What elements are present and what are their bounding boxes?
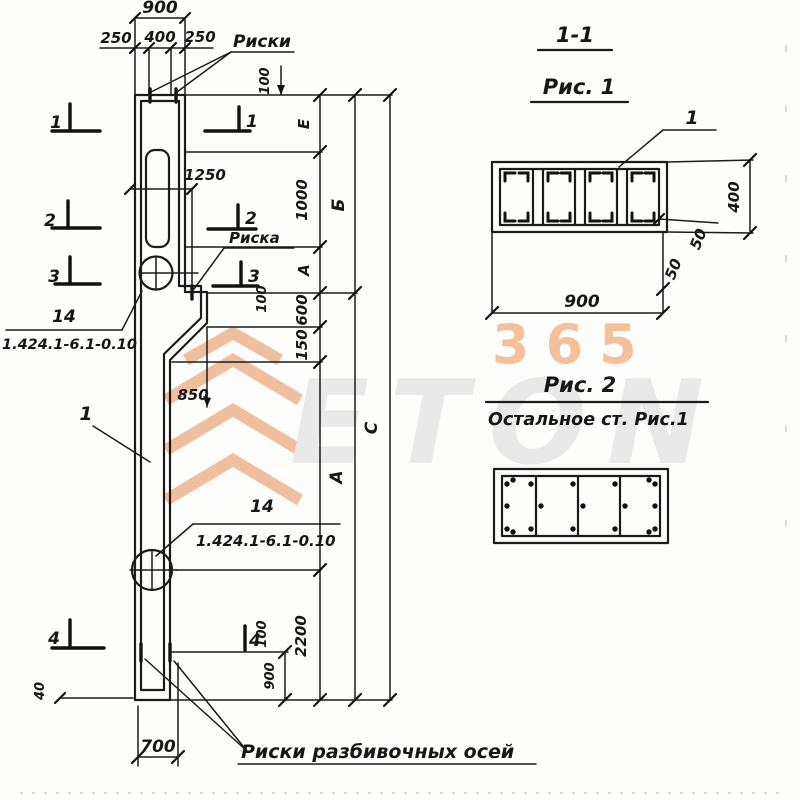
marker-1-right: 1 [205,107,258,132]
fig1-callout-1-text: 1 [685,107,698,129]
dim-letter-a: А [295,264,313,277]
dim-bottom-700-text: 700 [140,737,176,757]
loop-callout-bottom: 14 1.424.1-6.1-0.10 [156,497,340,556]
fig1-dim-50b: 50 [657,233,686,295]
dim-letter-b: Б [329,198,349,211]
marker-2-left: 2 [44,201,100,231]
section-title-block: 1-1 Рис. 1 [531,23,628,102]
fig2-title: Рис. 2 [544,373,616,397]
dim-letter-a2: А [327,470,347,485]
marker-3-left: 3 [48,257,100,287]
fig1-dim-900-text: 900 [564,292,600,312]
dim-bottom-700: 700 [132,663,184,766]
fig1-callout-1: 1 [619,107,716,167]
dim-400: 400 [143,28,175,46]
dim-250-right: 250 [184,28,215,46]
dim-total-900: 900 [142,0,178,18]
riska-mid-callout: Риска [194,229,294,289]
part-callout-1: 1 [79,403,150,462]
riski-top-label: Риски [233,32,291,52]
dim-letter-c: С [362,421,382,434]
riski-axes-callout: Риски разбивочных осей [145,659,536,764]
loop-top-series: 1.424.1-6.1-0.10 [2,337,137,353]
marker-3-right: 3 100 [213,262,270,313]
dim-m4-100: 100 [255,620,270,647]
dim-850: 850 [177,327,211,407]
marker-4-left: 4 [47,620,104,649]
marker-4-right: 4 100 [245,620,270,651]
marker-1-right-num: 1 [246,112,258,132]
watermark-digits-text: 365 [492,313,653,376]
marker-4-left-num: 4 [47,629,60,649]
loop-bottom-pos: 14 [250,497,274,517]
dim-250-left: 250 [100,29,131,47]
marker-2-right-num: 2 [245,209,257,229]
fig1-title: Рис. 1 [543,75,615,99]
fig2-note: Остальное ст. Рис.1 [488,410,689,430]
column-drawing-canvas: ETON 365 900 250 400 250 Риски [0,0,800,800]
marker-3-right-num: 3 [248,267,260,287]
fig1-section-view: 1 400 50 50 900 [486,107,756,319]
dim-top-100: 100 [258,66,285,95]
dim-m3-100: 100 [255,285,270,312]
dim-1250-text: 1250 [184,166,226,184]
drawing-sheet: ETON 365 900 250 400 250 Риски [0,0,800,800]
dim-bottom-900: 900 [263,646,291,706]
section-title: 1-1 [556,23,594,47]
dim-1000: 1000 [293,179,311,221]
marker-1-left: 1 [50,104,100,133]
dim-letter-e: Е [295,118,313,129]
dim-600: 600 [293,294,311,325]
dim-850-text: 850 [177,386,208,404]
column-slot [146,150,169,247]
loop-top-pos: 14 [52,307,76,327]
dim-2200: 2200 [292,615,310,657]
dim-top-100-text: 100 [258,67,273,94]
beton-logo-ribbons [166,333,300,500]
loop-callout-top: 14 1.424.1-6.1-0.10 [2,291,142,353]
dim-bottom-40-text: 40 [33,682,48,701]
dim-150: 150 [293,329,311,360]
fig1-rebar-hooks [505,173,654,221]
dim-bottom-900-text: 900 [263,662,278,689]
fig1-stirrup [500,169,659,225]
fig1-dim-400-text: 400 [725,181,743,213]
dim-bottom-40: 40 [33,682,133,703]
watermark: ETON 365 [166,313,724,500]
fig1-dim-50a-text: 50 [686,226,711,252]
top-dimensions: 900 250 400 250 [100,0,216,102]
loop-bottom-series: 1.424.1-6.1-0.10 [196,532,336,550]
riski-axes-label: Риски разбивочных осей [241,741,514,763]
fig1-dim-400: 400 [667,154,756,239]
fig1-dim-50b-text: 50 [661,256,686,282]
section-markers-left: 1 2 3 4 [44,104,104,649]
riska-mid-label: Риска [229,229,280,247]
marker-2-right: 2 [208,205,257,229]
fig1-dim-900: 900 [486,233,669,319]
part-callout-1-text: 1 [79,403,92,425]
